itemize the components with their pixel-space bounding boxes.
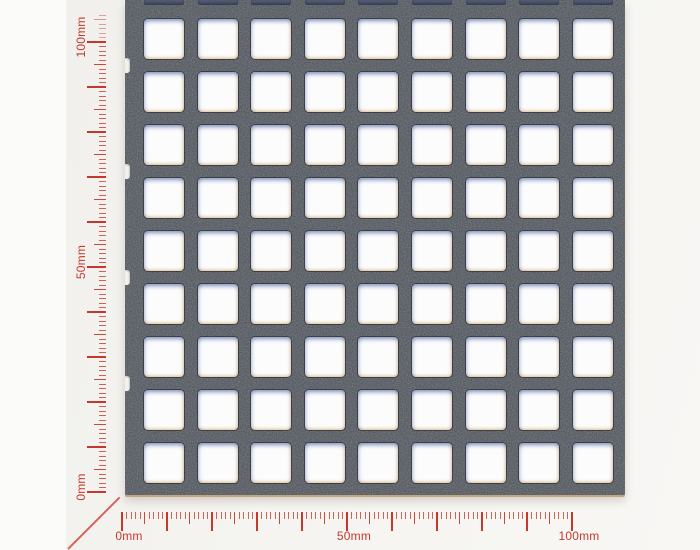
ruler-tick (99, 415, 106, 416)
ruler-tick (99, 163, 106, 164)
square-hole (466, 284, 506, 324)
ruler-tick (94, 244, 106, 246)
ruler-tick (99, 141, 106, 142)
square-hole (144, 231, 184, 271)
ruler-tick (99, 420, 106, 421)
ruler-label: 100mm (558, 530, 599, 542)
square-hole (251, 284, 291, 324)
square-hole (305, 337, 345, 377)
square-hole (412, 72, 452, 112)
square-hole (358, 125, 398, 165)
ruler-tick (99, 78, 106, 79)
ruler-tick (239, 512, 240, 519)
square-hole (358, 178, 398, 218)
ruler-tick (99, 82, 106, 83)
square-hole (519, 125, 559, 165)
ruler-tick (99, 456, 106, 457)
cut-hole-sliver (466, 0, 506, 5)
ruler-tick (230, 512, 231, 519)
square-hole (198, 19, 238, 59)
ruler-tick (135, 512, 136, 519)
square-hole (144, 443, 184, 483)
ruler-tick (99, 55, 106, 56)
ruler-tick (189, 512, 191, 524)
ruler-tick (99, 307, 106, 308)
ruler-tick (468, 512, 469, 519)
ruler-tick (459, 512, 461, 524)
ruler-tick (306, 512, 307, 519)
square-hole (358, 72, 398, 112)
ruler-tick (99, 465, 106, 466)
square-hole (573, 72, 613, 112)
ruler-tick (284, 512, 285, 519)
ruler-tick (333, 512, 334, 519)
square-hole (466, 125, 506, 165)
ruler-tick (531, 512, 532, 519)
ruler-tick (99, 352, 106, 353)
ruler-tick (99, 393, 106, 394)
ruler-tick (87, 131, 106, 133)
ruler-tick (369, 512, 371, 524)
ruler-tick (99, 46, 106, 47)
ruler-tick (99, 195, 106, 196)
ruler-tick (549, 512, 551, 524)
ruler-tick (87, 266, 106, 268)
ruler-tick (198, 512, 199, 519)
edge-notch (125, 270, 130, 285)
square-hole (573, 231, 613, 271)
square-hole (412, 178, 452, 218)
ruler-tick (99, 397, 106, 398)
ruler-tick (99, 28, 106, 29)
square-hole (466, 19, 506, 59)
ruler-tick (99, 168, 106, 169)
square-hole (573, 178, 613, 218)
square-hole (412, 284, 452, 324)
ruler-tick (374, 512, 375, 519)
ruler-tick (207, 512, 208, 519)
ruler-tick (563, 512, 564, 519)
square-hole (305, 178, 345, 218)
ruler-tick (513, 512, 514, 519)
ruler-tick (329, 512, 330, 519)
square-hole (251, 231, 291, 271)
ruler-tick (99, 325, 106, 326)
ruler-tick (473, 512, 474, 519)
ruler-tick (360, 512, 361, 519)
ruler-tick (365, 512, 366, 519)
ruler-label: 50mm (75, 245, 87, 279)
cut-hole-sliver (144, 0, 184, 5)
ruler-tick (256, 512, 258, 531)
ruler-tick (315, 512, 316, 519)
square-hole (358, 19, 398, 59)
ruler-tick (99, 145, 106, 146)
square-hole (305, 231, 345, 271)
ruler-tick (171, 512, 172, 519)
ruler-tick (94, 469, 106, 471)
ruler-tick (301, 512, 303, 531)
cut-hole-sliver (573, 0, 613, 5)
ruler-tick (545, 512, 546, 519)
ruler-tick (297, 512, 298, 519)
ruler-tick (270, 512, 271, 519)
ruler-tick (87, 86, 106, 88)
ruler-tick (288, 512, 289, 519)
ruler-tick (87, 446, 106, 448)
ruler-tick (234, 512, 236, 524)
ruler-tick (266, 512, 267, 519)
square-hole (198, 125, 238, 165)
square-hole (412, 231, 452, 271)
square-hole (198, 231, 238, 271)
ruler-tick (94, 424, 106, 426)
ruler-tick (293, 512, 294, 519)
square-hole (519, 284, 559, 324)
square-hole (358, 231, 398, 271)
ruler-tick (180, 512, 181, 519)
cut-hole-sliver (251, 0, 291, 5)
square-hole (358, 337, 398, 377)
ruler-tick (99, 384, 106, 385)
ruler-tick (436, 512, 438, 531)
square-hole (251, 19, 291, 59)
square-hole (198, 178, 238, 218)
ruler-tick (99, 235, 106, 236)
ruler-tick (378, 512, 379, 519)
ruler-tick (99, 298, 106, 299)
ruler-tick (99, 172, 106, 173)
ruler-tick (495, 512, 496, 519)
square-hole (305, 72, 345, 112)
ruler-tick (99, 226, 106, 227)
cut-hole-sliver (198, 0, 238, 5)
ruler-tick (99, 474, 106, 475)
ruler-tick (99, 73, 106, 74)
square-hole (519, 178, 559, 218)
square-hole (519, 19, 559, 59)
ruler-tick (216, 512, 217, 519)
square-hole (198, 443, 238, 483)
ruler-tick (99, 37, 106, 38)
ruler-tick (144, 512, 146, 524)
ruler-tick (225, 512, 226, 519)
square-hole (573, 390, 613, 430)
ruler-tick (99, 375, 106, 376)
ruler-tick (99, 285, 106, 286)
ruler-tick (99, 231, 106, 232)
ruler-tick (99, 24, 106, 25)
ruler-tick (99, 487, 106, 488)
square-hole (466, 72, 506, 112)
perforated-sheet-plate (125, 0, 625, 495)
ruler-tick (248, 512, 249, 519)
ruler-tick (99, 339, 106, 340)
square-hole (305, 284, 345, 324)
ruler-tick (536, 512, 537, 519)
ruler-tick (522, 512, 523, 519)
ruler-tick (414, 512, 416, 524)
square-hole (519, 72, 559, 112)
ruler-tick (410, 512, 411, 519)
ruler-tick (153, 512, 154, 519)
ruler-tick (387, 512, 388, 519)
ruler-tick (455, 512, 456, 519)
ruler-tick (504, 512, 506, 524)
square-hole (251, 72, 291, 112)
ruler-tick (126, 512, 127, 519)
ruler-tick (99, 190, 106, 191)
ruler-tick (94, 334, 106, 336)
ruler-tick (99, 249, 106, 250)
ruler-tick (518, 512, 519, 519)
square-hole (251, 443, 291, 483)
ruler-tick (87, 41, 106, 43)
ruler-tick (99, 276, 106, 277)
ruler-tick (158, 512, 159, 519)
ruler-tick (558, 512, 559, 519)
square-hole (466, 337, 506, 377)
ruler-tick (99, 33, 106, 34)
square-hole (305, 390, 345, 430)
square-hole (573, 284, 613, 324)
ruler-tick (311, 512, 312, 519)
square-hole (412, 337, 452, 377)
ruler-tick (149, 512, 150, 519)
ruler-tick (99, 186, 106, 187)
square-hole (573, 19, 613, 59)
ruler-tick (140, 512, 141, 519)
square-hole (466, 443, 506, 483)
ruler-tick (99, 159, 106, 160)
ruler-tick (99, 51, 106, 52)
square-hole (573, 337, 613, 377)
ruler-tick (567, 512, 568, 519)
ruler-tick (99, 258, 106, 259)
ruler-tick (87, 401, 106, 403)
ruler-tick (162, 512, 163, 519)
square-hole (144, 19, 184, 59)
ruler-tick (99, 271, 106, 272)
square-hole (358, 390, 398, 430)
square-hole (144, 337, 184, 377)
square-hole (466, 178, 506, 218)
edge-notch (125, 376, 130, 391)
ruler-tick (423, 512, 424, 519)
ruler-tick (356, 512, 357, 519)
ruler-tick (176, 512, 177, 519)
ruler-tick (99, 105, 106, 106)
ruler-tick (446, 512, 447, 519)
ruler-tick (99, 483, 106, 484)
ruler-tick (243, 512, 244, 519)
square-hole (305, 19, 345, 59)
ruler-tick (99, 204, 106, 205)
ruler-tick (194, 512, 195, 519)
ruler-tick (99, 460, 106, 461)
ruler-tick (99, 321, 106, 322)
square-hole (519, 443, 559, 483)
ruler-tick (99, 114, 106, 115)
ruler-tick (99, 15, 106, 16)
ruler-tick (464, 512, 465, 519)
ruler-tick (432, 512, 433, 519)
square-hole (466, 390, 506, 430)
ruler-tick (99, 123, 106, 124)
ruler-tick (509, 512, 510, 519)
ruler-tick (99, 262, 106, 263)
ruler-tick (99, 348, 106, 349)
ruler-tick (383, 512, 384, 519)
ruler-tick (99, 343, 106, 344)
square-hole (198, 284, 238, 324)
ruler-tick (99, 253, 106, 254)
ruler-tick (99, 118, 106, 119)
ruler-tick (99, 370, 106, 371)
ruler-tick (450, 512, 451, 519)
ruler-tick (99, 280, 106, 281)
ruler-tick (99, 429, 106, 430)
ruler-tick (99, 330, 106, 331)
ruler-tick (342, 512, 343, 519)
ruler-tick (185, 512, 186, 519)
ruler-tick (491, 512, 492, 519)
cut-hole-sliver (305, 0, 345, 5)
product-photo-stage: 0mm50mm100mm 0mm50mm100mm (0, 0, 700, 550)
ruler-tick (94, 154, 106, 156)
square-hole (412, 19, 452, 59)
square-hole (198, 337, 238, 377)
ruler-tick (99, 361, 106, 362)
square-hole (519, 390, 559, 430)
square-hole (412, 390, 452, 430)
square-hole (573, 443, 613, 483)
ruler-tick (99, 96, 106, 97)
ruler-tick (99, 388, 106, 389)
square-hole (251, 125, 291, 165)
ruler-tick (481, 512, 483, 531)
ruler-tick (99, 127, 106, 128)
square-hole (358, 443, 398, 483)
ruler-tick (99, 411, 106, 412)
ruler-tick (94, 19, 106, 21)
ruler-tick (221, 512, 222, 519)
ruler-tick (87, 356, 106, 358)
ruler-tick (99, 181, 106, 182)
ruler-tick (94, 289, 106, 291)
square-hole (144, 284, 184, 324)
square-hole (519, 337, 559, 377)
ruler-tick (279, 512, 281, 524)
ruler-tick (87, 176, 106, 178)
ruler-tick (94, 109, 106, 111)
ruler-tick (94, 64, 106, 66)
ruler-tick (87, 221, 106, 223)
ruler-tick (94, 199, 106, 201)
ruler-tick (391, 512, 393, 531)
ruler-label: 100mm (75, 16, 87, 57)
cut-hole-sliver (412, 0, 452, 5)
square-hole (412, 443, 452, 483)
ruler-tick (99, 316, 106, 317)
ruler-tick (99, 303, 106, 304)
ruler-tick (203, 512, 204, 519)
ruler-tick (99, 150, 106, 151)
ruler-tick (99, 366, 106, 367)
ruler-tick (338, 512, 339, 519)
ruler-tick (441, 512, 442, 519)
square-hole (144, 72, 184, 112)
ruler-tick (99, 213, 106, 214)
square-hole (251, 390, 291, 430)
ruler-tick (99, 478, 106, 479)
ruler-tick (99, 217, 106, 218)
ruler-tick (99, 136, 106, 137)
square-hole (251, 337, 291, 377)
square-hole (573, 125, 613, 165)
ruler-tick (99, 294, 106, 295)
ruler-tick (94, 379, 106, 381)
ruler-label: 0mm (75, 473, 87, 500)
ruler-tick (99, 240, 106, 241)
ruler-tick (526, 512, 528, 531)
ruler-tick (320, 512, 321, 519)
ruler-tick (99, 406, 106, 407)
cut-hole-sliver (358, 0, 398, 5)
ruler-tick (99, 438, 106, 439)
ruler-label: 50mm (337, 530, 371, 542)
ruler-tick (396, 512, 397, 519)
ruler-tick (486, 512, 487, 519)
square-hole (144, 178, 184, 218)
ruler-tick (99, 433, 106, 434)
ruler-tick (99, 91, 106, 92)
ruler-tick (99, 100, 106, 101)
square-hole (305, 443, 345, 483)
ruler-tick (401, 512, 402, 519)
square-hole (519, 231, 559, 271)
ruler-label: 0mm (115, 530, 142, 542)
ruler-tick (99, 69, 106, 70)
ruler-tick (252, 512, 253, 519)
ruler-tick (275, 512, 276, 519)
ruler-tick (99, 60, 106, 61)
ruler-tick (87, 311, 106, 313)
ruler-tick (211, 512, 213, 531)
ruler-tick (405, 512, 406, 519)
cut-hole-sliver (519, 0, 559, 5)
edge-notch (125, 164, 130, 179)
ruler-tick (419, 512, 420, 519)
square-hole (251, 178, 291, 218)
ruler-tick (500, 512, 501, 519)
square-hole (144, 390, 184, 430)
square-hole (358, 284, 398, 324)
ruler-tick (261, 512, 262, 519)
ruler-tick (477, 512, 478, 519)
ruler-tick (554, 512, 555, 519)
ruler-tick (428, 512, 429, 519)
ruler-tick (166, 512, 168, 531)
square-hole (198, 72, 238, 112)
ruler-tick (99, 442, 106, 443)
square-hole (198, 390, 238, 430)
edge-notch (125, 58, 130, 73)
square-hole (144, 125, 184, 165)
ruler-tick (87, 491, 106, 493)
square-hole (305, 125, 345, 165)
ruler-tick (351, 512, 352, 519)
